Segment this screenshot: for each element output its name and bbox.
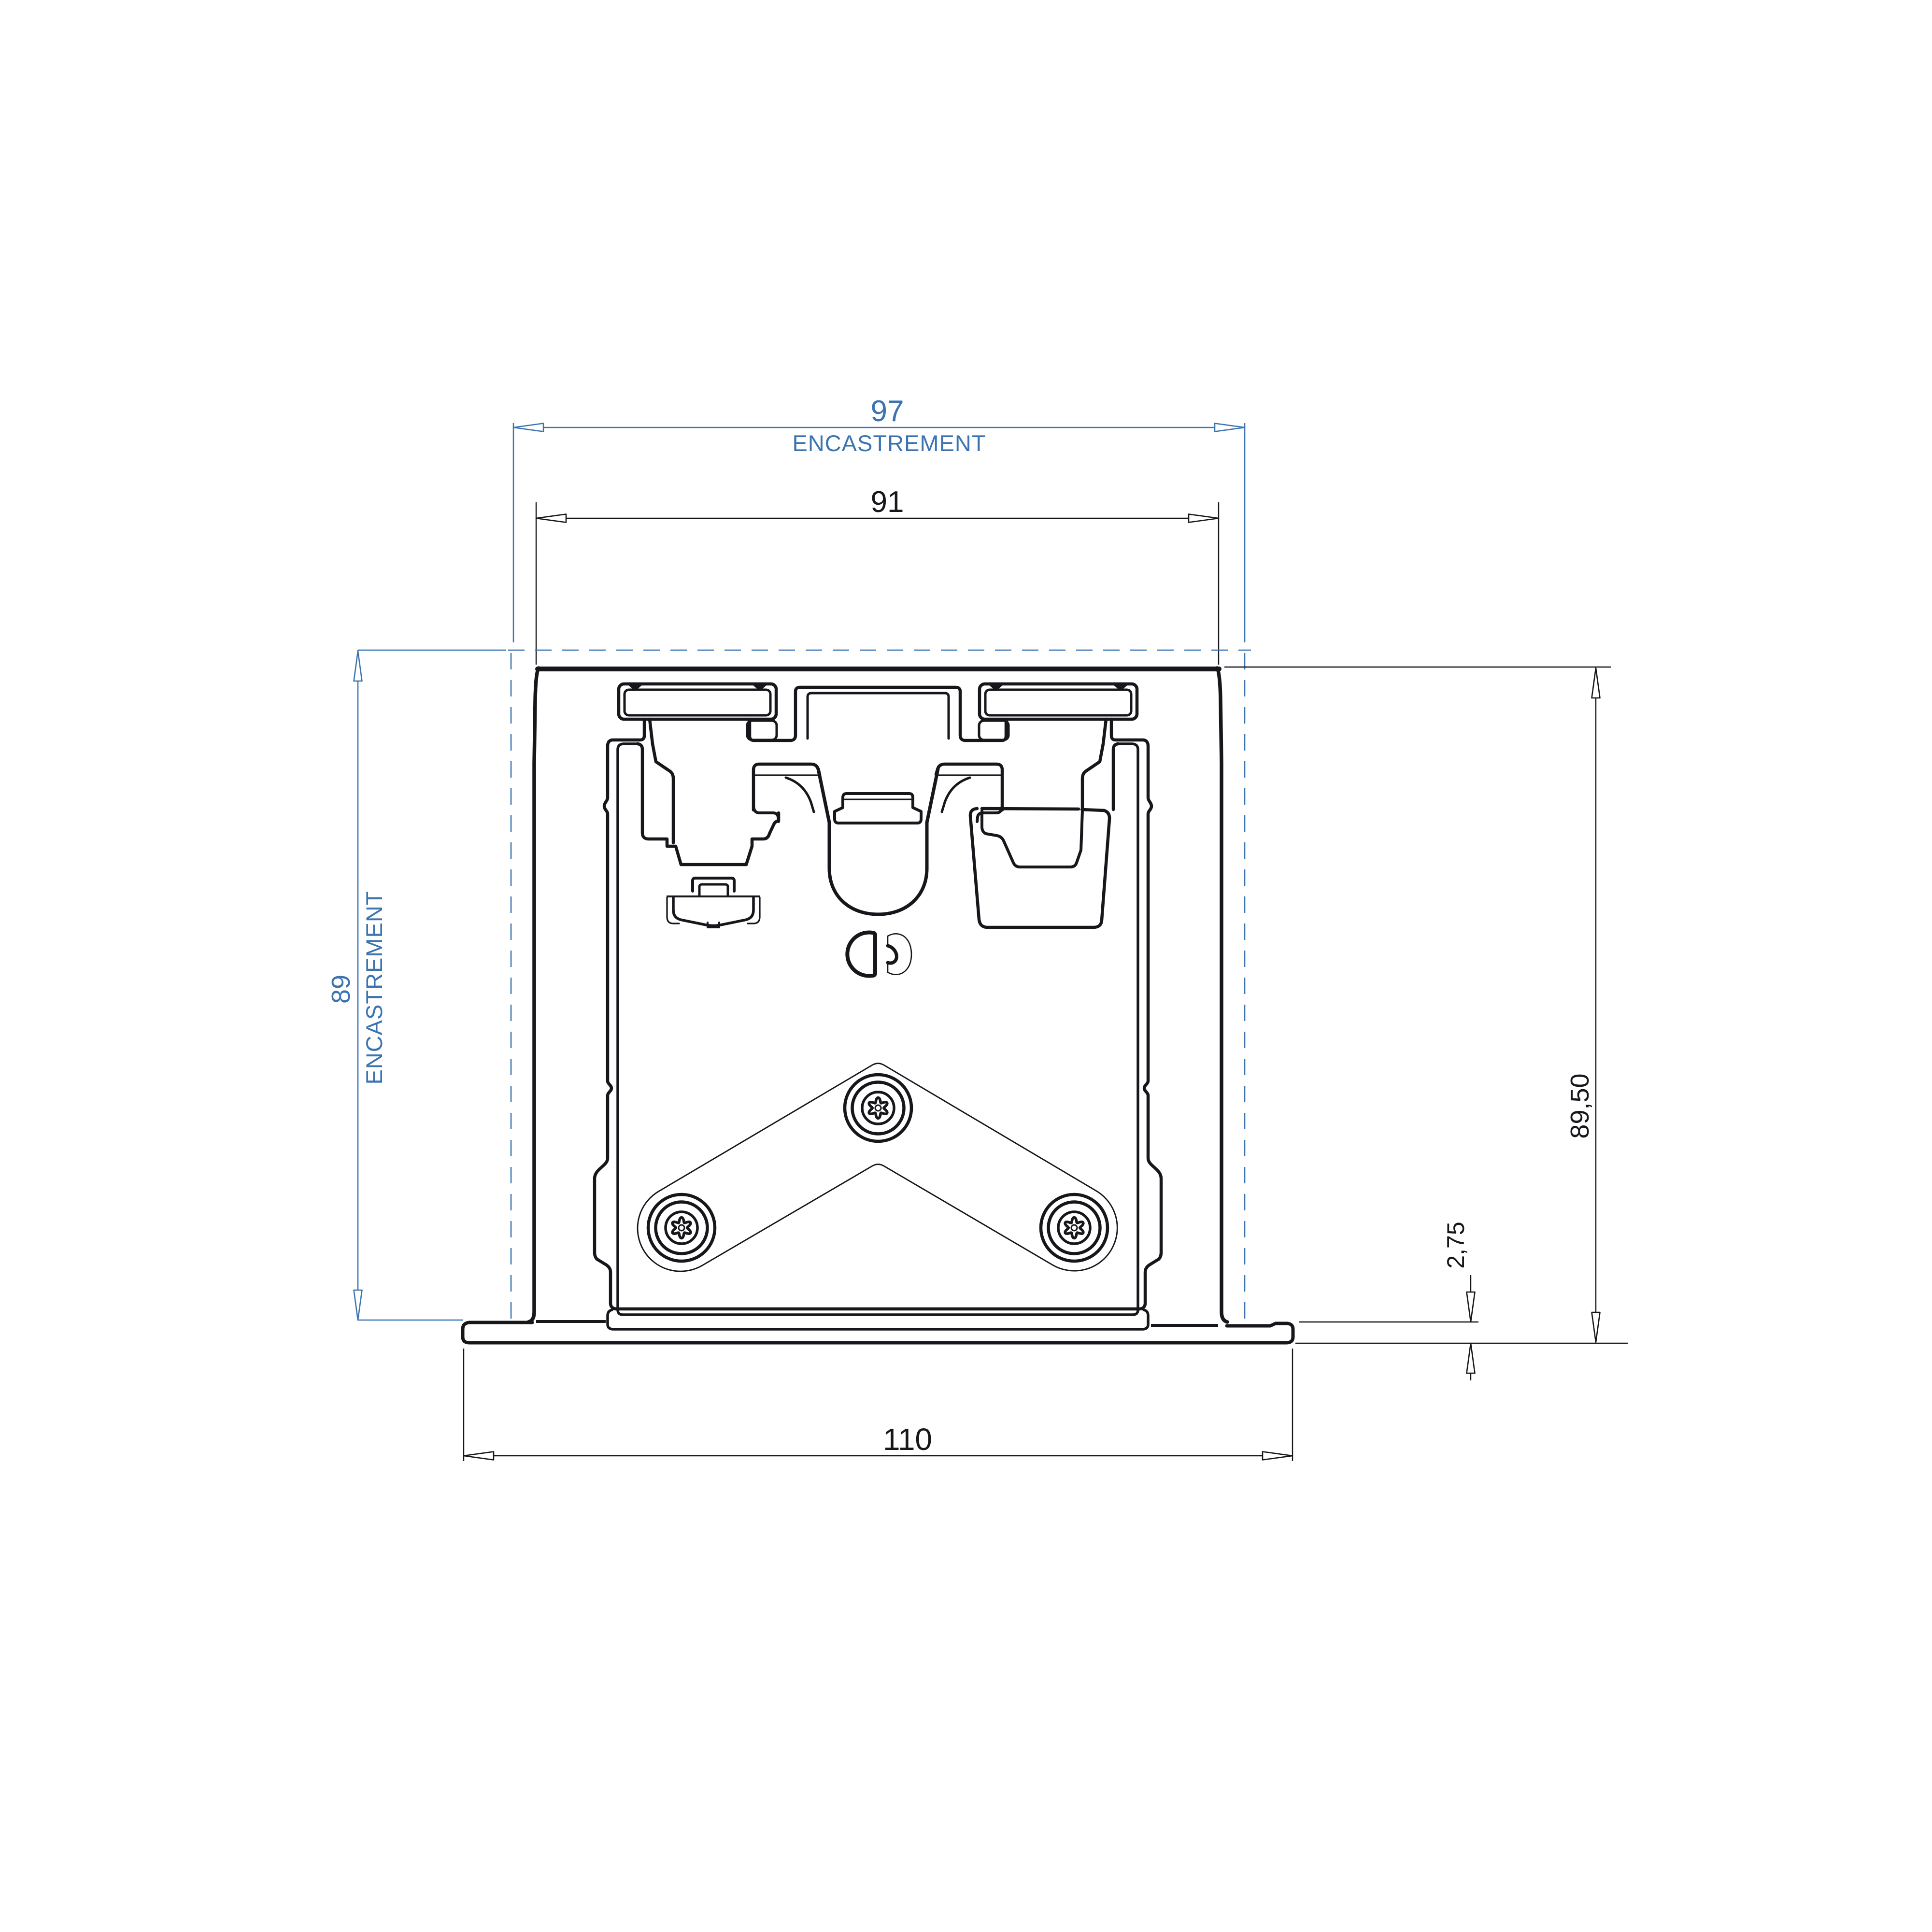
svg-text:89,50: 89,50	[1565, 1073, 1594, 1138]
svg-text:ENCASTREMENT: ENCASTREMENT	[361, 891, 387, 1084]
svg-text:91: 91	[871, 485, 904, 519]
svg-text:110: 110	[883, 1422, 932, 1457]
svg-text:89: 89	[327, 975, 355, 1004]
svg-text:2,75: 2,75	[1442, 1222, 1469, 1268]
svg-text:ENCASTREMENT: ENCASTREMENT	[792, 430, 986, 456]
svg-text:97: 97	[871, 395, 904, 428]
